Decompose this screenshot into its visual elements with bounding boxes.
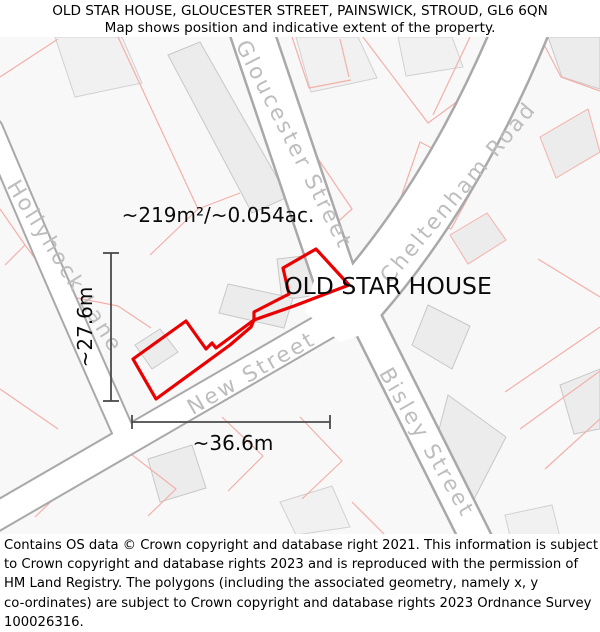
property-address-title: OLD STAR HOUSE, GLOUCESTER STREET, PAINS… xyxy=(0,3,600,20)
attribution-line: co-ordinates) are subject to Crown copyr… xyxy=(4,594,600,613)
footer-attribution: Contains OS data © Crown copyright and d… xyxy=(0,534,600,632)
attribution-line: HM Land Registry. The polygons (includin… xyxy=(4,574,600,593)
map-header: OLD STAR HOUSE, GLOUCESTER STREET, PAINS… xyxy=(0,0,600,37)
attribution-line: 100026316. xyxy=(4,613,600,632)
property-name-label: OLD STAR HOUSE xyxy=(284,272,492,300)
map-svg: Gloucester Street Cheltenham Road Hollyh… xyxy=(0,37,600,534)
width-measurement-label: ~36.6m xyxy=(193,431,274,455)
attribution-line: to Crown copyright and database rights 2… xyxy=(4,555,600,574)
area-label: ~219m²/~0.054ac. xyxy=(122,203,315,227)
attribution-line: Contains OS data © Crown copyright and d… xyxy=(4,536,600,555)
height-measurement-label: ~27.6m xyxy=(73,287,97,368)
map-description-subtitle: Map shows position and indicative extent… xyxy=(0,20,600,37)
map-canvas: Gloucester Street Cheltenham Road Hollyh… xyxy=(0,37,600,534)
